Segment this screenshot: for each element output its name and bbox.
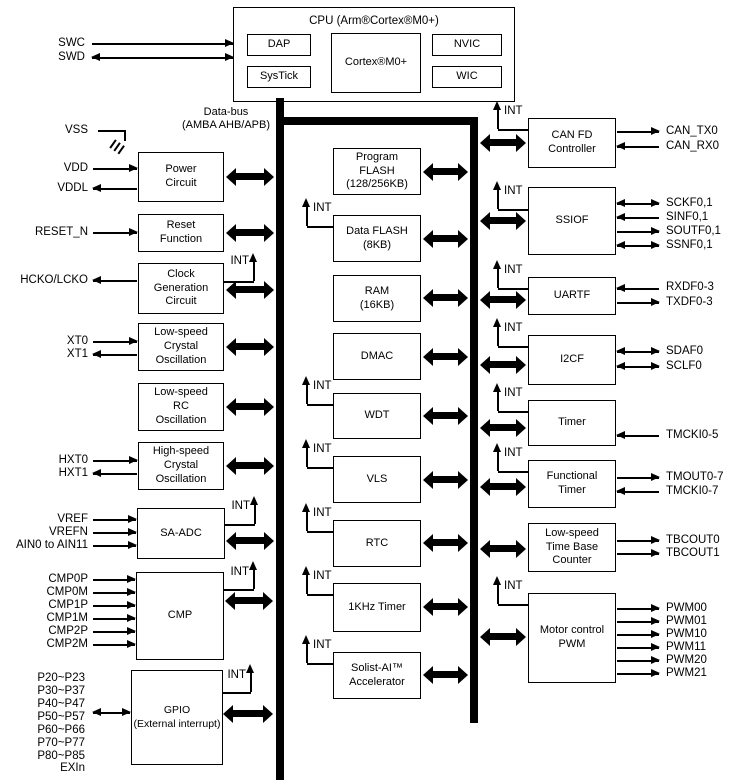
pin-sclf0: SCLF0 <box>666 360 702 373</box>
ssnf-wire <box>617 245 659 247</box>
bus-arrow-rtc <box>432 539 459 546</box>
int-wire-data-flash <box>307 226 333 228</box>
int-arrow-wdt <box>306 384 308 404</box>
cortex-m0plus-block: Cortex®M0+ <box>331 33 421 93</box>
txdf-wire <box>617 302 659 304</box>
bus-arrow-cmp <box>234 597 264 604</box>
ain-wire <box>93 545 136 547</box>
bus-arrow-timer <box>489 424 517 431</box>
int-wire-uartf <box>498 288 528 290</box>
sinf-wire <box>617 217 659 219</box>
int-wire-vls <box>307 467 333 469</box>
int-label-data-flash: INT <box>313 202 332 214</box>
pin-xt1: XT1 <box>0 348 88 361</box>
sdaf0-wire <box>617 351 659 353</box>
pin-cmp1p: CMP1P <box>0 599 88 612</box>
bus-arrow-hs-crystal <box>235 462 265 469</box>
int-wire-sa-adc <box>225 524 255 526</box>
pin-soutf: SOUTF0,1 <box>666 225 721 238</box>
pin-cmp2m: CMP2M <box>0 638 88 651</box>
int-wire-canfd <box>498 129 528 131</box>
pin-tmout0-7: TMOUT0-7 <box>666 471 724 484</box>
pin-p20-p23: P20~P23 <box>0 672 85 685</box>
int-label-i2cf: INT <box>504 322 523 334</box>
ssiof-block: SSIOF <box>528 187 616 255</box>
int-label-rtc: INT <box>313 507 332 519</box>
pin-p30-p37: P30~P37 <box>0 685 85 698</box>
int-arrow-timer <box>497 391 499 411</box>
bus-arrow-dmac <box>432 353 459 360</box>
vls-block: VLS <box>333 456 421 503</box>
pwm21-wire <box>617 673 659 675</box>
int-arrow-vls <box>306 447 308 467</box>
bus-bar-left <box>276 98 284 780</box>
pin-cmp0m: CMP0M <box>0 586 88 599</box>
bus-arrow-vls <box>432 476 459 483</box>
ground-icon <box>109 139 116 148</box>
int-label-clock: INT <box>219 255 249 268</box>
bus-arrow-ls-crystal <box>235 343 265 350</box>
pin-pwm01: PWM01 <box>666 615 707 628</box>
int-label-cmp: INT <box>219 566 249 579</box>
bus-arrow-ram <box>432 294 459 301</box>
bus-arrow-wdt <box>432 412 459 419</box>
dap-block: DAP <box>247 34 311 56</box>
power-circuit-block: Power Circuit <box>138 152 224 202</box>
pin-p70-p77: P70~P77 <box>0 737 85 750</box>
pin-swc: SWC <box>40 37 85 50</box>
wdt-block: WDT <box>333 393 421 439</box>
int-wire-1khz <box>307 594 333 596</box>
rtc-block: RTC <box>333 520 421 567</box>
cmp1m-wire <box>93 618 135 620</box>
pin-p60-p66: P60~P66 <box>0 724 85 737</box>
bus-arrow-gpio <box>232 710 264 717</box>
int-wire-pwm <box>498 604 528 606</box>
pin-vref: VREF <box>0 513 88 526</box>
bus-bar-top <box>284 117 470 125</box>
int-wire-gpio <box>223 692 251 694</box>
int-label-sa-adc: INT <box>220 500 250 513</box>
bus-arrow-clock <box>235 286 265 293</box>
pin-pwm21: PWM21 <box>666 667 707 680</box>
pin-swd: SWD <box>40 51 85 64</box>
sa-adc-block: SA-ADC <box>137 508 225 559</box>
int-label-wdt: INT <box>313 380 332 392</box>
pin-sckf: SCKF0,1 <box>666 197 713 210</box>
pin-tmcki0-5: TMCKI0-5 <box>666 429 718 442</box>
int-label-gpio: INT <box>216 669 246 682</box>
pin-ain: AIN0 to AIN11 <box>0 539 88 552</box>
bus-arrow-data-flash <box>432 235 459 242</box>
vdd-wire <box>93 168 137 170</box>
clock-generation-block: Clock Generation Circuit <box>138 263 224 314</box>
reset-function-block: Reset Function <box>138 214 224 252</box>
databus-label: Data-bus (AMBA AHB/APB) <box>180 106 272 131</box>
int-arrow-1khz <box>306 574 308 594</box>
functional-timer-block: Functional Timer <box>528 460 616 508</box>
pin-hxt0: HXT0 <box>0 454 88 467</box>
bus-arrow-sa-adc <box>235 537 265 544</box>
int-label-solist: INT <box>313 639 332 651</box>
pin-pwm20: PWM20 <box>666 654 707 667</box>
pin-sinf: SINF0,1 <box>666 211 708 224</box>
int-wire-ssiof <box>498 209 528 211</box>
bus-arrow-solist <box>432 671 459 678</box>
high-speed-crystal-block: High-speed Crystal Oscillation <box>138 442 224 490</box>
bus-arrow-power <box>235 173 265 180</box>
cmp0p-wire <box>93 579 135 581</box>
int-arrow-data-flash <box>306 206 308 226</box>
pin-xt0: XT0 <box>0 335 88 348</box>
pwm00-wire <box>617 608 659 610</box>
int-arrow-ftimer <box>497 451 499 471</box>
low-speed-crystal-block: Low-speed Crystal Oscillation <box>138 323 224 371</box>
mcu-block-diagram: CPU (Arm®Cortex®M0+) DAP SysTick Cortex®… <box>0 0 729 784</box>
tmcki07-wire <box>617 491 659 493</box>
program-flash-block: Program FLASH (128/256KB) <box>333 148 421 195</box>
int-label-ftimer: INT <box>504 447 523 459</box>
reset-wire <box>93 232 137 234</box>
int-arrow-clock <box>253 261 255 281</box>
bus-arrow-reset <box>235 229 265 236</box>
int-label-canfd: INT <box>504 105 523 117</box>
pin-ssnf: SSNF0,1 <box>666 239 713 252</box>
pin-cmp2p: CMP2P <box>0 625 88 638</box>
gpio-port-wire <box>93 712 130 714</box>
tmout-wire <box>617 477 659 479</box>
pwm11-wire <box>617 647 659 649</box>
pin-tbcout1: TBCOUT1 <box>666 547 720 560</box>
tmcki05-wire <box>617 435 659 437</box>
tbcout0-wire <box>617 540 659 542</box>
pin-pwm10: PWM10 <box>666 628 707 641</box>
bus-arrow-pwm <box>489 633 517 640</box>
ram-block: RAM (16KB) <box>333 275 421 322</box>
nvic-block: NVIC <box>432 34 502 56</box>
pin-vdd: VDD <box>0 162 88 175</box>
bus-arrow-ls-rc <box>235 403 265 410</box>
pin-pwm00: PWM00 <box>666 602 707 615</box>
hxt0-wire <box>93 460 137 462</box>
pin-exin: EXIn <box>0 762 85 775</box>
1khz-timer-block: 1KHz Timer <box>333 583 421 632</box>
pin-can-rx0: CAN_RX0 <box>666 140 719 153</box>
int-wire-solist <box>307 663 333 665</box>
pin-tbcout0: TBCOUT0 <box>666 534 720 547</box>
int-wire-wdt <box>307 404 333 406</box>
bus-arrow-i2cf <box>489 361 517 368</box>
bus-bar-right <box>470 117 478 723</box>
hcko-wire <box>93 280 137 282</box>
rxdf-wire <box>617 288 659 290</box>
tbcout1-wire <box>617 553 659 555</box>
vss-wire-drop <box>124 130 126 141</box>
pin-hcko-lcko: HCKO/LCKO <box>0 274 88 287</box>
i2cf-block: I2CF <box>528 335 616 385</box>
systick-block: SysTick <box>247 66 311 88</box>
pin-sdaf0: SDAF0 <box>666 345 703 358</box>
pin-vss: VSS <box>0 124 88 137</box>
int-arrow-gpio <box>250 672 252 692</box>
pin-hxt1: HXT1 <box>0 467 88 480</box>
bus-arrow-ftimer <box>489 483 517 490</box>
data-flash-block: Data FLASH (8KB) <box>333 215 421 262</box>
int-wire-i2cf <box>498 346 528 348</box>
bus-arrow-1khz-timer <box>432 603 459 610</box>
pin-vddl: VDDL <box>0 182 88 195</box>
int-label-vls: INT <box>313 443 332 455</box>
int-arrow-ssiof <box>497 189 499 209</box>
cmp0m-wire <box>93 592 135 594</box>
pin-tmcki0-7: TMCKI0-7 <box>666 485 718 498</box>
can-tx0-wire <box>617 131 659 133</box>
sclf0-wire <box>617 366 659 368</box>
uartf-block: UARTF <box>528 277 616 315</box>
pin-cmp1m: CMP1M <box>0 612 88 625</box>
sckf-wire <box>617 203 659 205</box>
solist-ai-accelerator-block: Solist-AI™ Accelerator <box>333 652 421 699</box>
int-label-uartf: INT <box>504 264 523 276</box>
pwm10-wire <box>617 634 659 636</box>
int-wire-rtc <box>307 531 333 533</box>
int-wire-timer <box>498 411 528 413</box>
vss-wire <box>98 130 125 132</box>
can-rx0-wire <box>617 146 659 148</box>
pin-can-tx0: CAN_TX0 <box>666 125 718 138</box>
vrefn-wire <box>93 532 136 534</box>
int-arrow-pwm <box>497 584 499 604</box>
timer-block: Timer <box>528 400 616 446</box>
soutf-wire <box>617 231 659 233</box>
int-label-pwm: INT <box>504 580 523 592</box>
bus-arrow-ssiof <box>489 217 517 224</box>
pin-reset-n: RESET_N <box>0 226 88 239</box>
int-wire-cmp <box>224 589 254 591</box>
pwm01-wire <box>617 621 659 623</box>
swc-wire <box>92 43 233 45</box>
int-arrow-uartf <box>497 268 499 288</box>
int-wire-clock <box>224 281 254 283</box>
bus-arrow-canfd <box>489 139 517 146</box>
time-base-counter-block: Low-speed Time Base Counter <box>528 523 616 572</box>
int-arrow-rtc <box>306 511 308 531</box>
dmac-block: DMAC <box>333 333 421 380</box>
vref-wire <box>93 519 136 521</box>
int-arrow-solist <box>306 643 308 663</box>
hxt1-wire <box>93 473 137 475</box>
xt1-wire <box>93 354 137 356</box>
gpio-block: GPIO (External interrupt) <box>131 670 223 765</box>
bus-arrow-uartf <box>489 296 517 303</box>
cmp2m-wire <box>93 644 135 646</box>
vddl-wire <box>93 188 137 190</box>
bus-arrow-tbc <box>489 545 517 552</box>
wic-block: WIC <box>432 66 502 88</box>
xt0-wire <box>93 341 137 343</box>
bus-arrow-program-flash <box>432 168 459 175</box>
pin-rxdf: RXDF0-3 <box>666 281 714 294</box>
cpu-block: CPU (Arm®Cortex®M0+) DAP SysTick Cortex®… <box>233 7 515 102</box>
pin-p50-p57: P50~P57 <box>0 711 85 724</box>
int-label-ssiof: INT <box>504 185 523 197</box>
pin-txdf: TXDF0-3 <box>666 296 713 309</box>
int-arrow-sa-adc <box>254 504 256 524</box>
cpu-title: CPU (Arm®Cortex®M0+) <box>234 14 514 28</box>
pin-p40-p47: P40~P47 <box>0 698 85 711</box>
int-arrow-canfd <box>497 109 499 129</box>
can-fd-controller-block: CAN FD Controller <box>528 118 616 168</box>
pin-pwm11: PWM11 <box>666 641 706 654</box>
low-speed-rc-block: Low-speed RC Oscillation <box>138 383 224 431</box>
cmp-block: CMP <box>136 572 224 660</box>
int-label-timer: INT <box>504 387 523 399</box>
pin-cmp0p: CMP0P <box>0 573 88 586</box>
cmp2p-wire <box>93 631 135 633</box>
int-wire-ftimer <box>498 471 528 473</box>
pin-vrefn: VREFN <box>0 526 88 539</box>
int-arrow-i2cf <box>497 326 499 346</box>
pwm20-wire <box>617 660 659 662</box>
int-label-1khz: INT <box>313 570 332 582</box>
swd-wire <box>92 57 233 59</box>
cmp1p-wire <box>93 605 135 607</box>
motor-control-pwm-block: Motor control PWM <box>528 593 616 683</box>
int-arrow-cmp <box>253 569 255 589</box>
